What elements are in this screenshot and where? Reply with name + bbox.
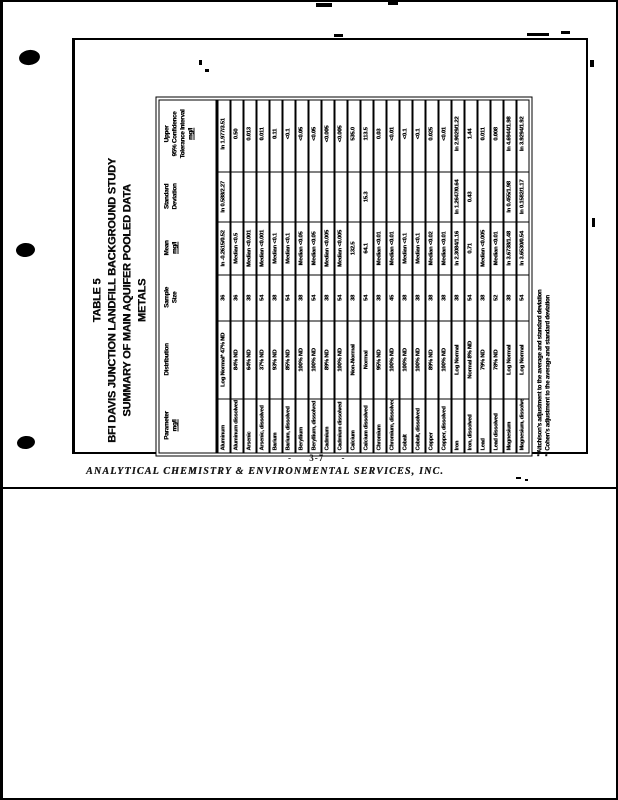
column-header-line: Distribution (164, 321, 172, 399)
table-cell (245, 172, 256, 222)
table-cell: 89% ND (427, 321, 438, 399)
hole-punch (15, 242, 35, 258)
table-cell (271, 172, 282, 222)
table-row: Arsenic64% ND38Median <0.0010.013 (245, 101, 258, 453)
column-header-line: Deviation (172, 172, 180, 222)
table-cell: 38 (271, 275, 282, 321)
table-cell: <0.05 (310, 97, 321, 172)
table-cell: Median <0.1 (284, 222, 295, 275)
scan-artifact (388, 2, 398, 5)
table-row: Beryllium, dissolved100% ND54Median <0.0… (310, 101, 323, 453)
table-cell: ln 2.9029/1.22 (453, 97, 464, 172)
table-row: Lead79% ND38Median <0.0050.011 (479, 101, 492, 453)
table-cell: Barium (271, 399, 282, 453)
table-cell: 0.025 (427, 97, 438, 172)
table-footnotes: * Aitchison's adjustment to the average … (537, 82, 553, 457)
table-cell: <0.1 (414, 97, 425, 172)
table-body: AluminumLog Normal* 47% ND36ln -0.2615/0… (219, 101, 529, 453)
table-cell: 100% ND (401, 321, 412, 399)
table-cell: <0.01 (440, 97, 451, 172)
table-row: Magnesium, dissolvedLog Normal54ln 3.653… (518, 101, 529, 453)
table-cell: Copper (427, 399, 438, 453)
table-cell (297, 172, 308, 222)
table-cell: 0.03 (375, 97, 386, 172)
column-header-line: 95% Confidence (172, 97, 180, 172)
table-cell (323, 172, 334, 222)
table-cell: 36 (232, 275, 243, 321)
table-cell: Median <0.02 (427, 222, 438, 275)
scan-artifact (334, 34, 343, 37)
table-row: Arsenic, dissolved37% ND54Median <0.0010… (258, 101, 271, 453)
table-cell: Median <0.1 (414, 222, 425, 275)
table-cell: ln -0.2615/0.52 (219, 222, 230, 275)
table-cell: Log Normal* 47% ND (219, 321, 230, 399)
table-cell: ln 1.977/3.51 (219, 97, 230, 172)
table-cell: Copper, dissolved (440, 399, 451, 453)
table-cell: Magnesium, dissolved (518, 399, 529, 453)
column-header-line: mg/l (172, 222, 180, 275)
table-cell: Median <0.5 (232, 222, 243, 275)
table-row: Barium93% ND38Median <0.10.11 (271, 101, 284, 453)
table-cell: Iron, dissolved (466, 399, 477, 453)
table-cell (336, 172, 347, 222)
column-header: StandardDeviation (160, 172, 216, 222)
table-row: Cadmium89% ND38Median <0.005<0.005 (323, 101, 336, 453)
column-header: Distribution (160, 321, 216, 399)
table-cell: 38 (479, 275, 490, 321)
table-cell (440, 172, 451, 222)
column-header: Meanmg/l (160, 222, 216, 275)
table-cell: Lead (479, 399, 490, 453)
title-line: TABLE 5 (91, 145, 106, 457)
page-number: - 3-7 - (288, 453, 346, 463)
footnote-line: ** Cohen's adjustment to the average and… (545, 82, 553, 457)
table-cell: 93% ND (271, 321, 282, 399)
table-cell: 535.0 (349, 97, 360, 172)
table-cell: Arsenic, dissolved (258, 399, 269, 453)
table-cell: 38 (427, 275, 438, 321)
column-header-line: Parameter (164, 399, 172, 453)
table-row: Barium, dissolved85% ND54Median <0.1<0.1 (284, 101, 297, 453)
table-cell: 38 (297, 275, 308, 321)
table-row: Chromium95% ND38Median <0.010.03 (375, 101, 388, 453)
table-cell: ln 1.2647/0.64 (453, 172, 464, 222)
table-cell: Median <0.1 (271, 222, 282, 275)
table-cell: Non-Normal (349, 321, 360, 399)
table-cell: Normal (362, 321, 373, 399)
table-row: Aluminum dissolved84% ND36Median <0.50.5… (232, 101, 245, 453)
table-row: IronLog Normal38ln 2.3084/1.16ln 1.2647/… (453, 101, 466, 453)
table-cell: ln 0.455/1.98 (505, 172, 516, 222)
table-row: Calcium dissolvedNormal5464.115.3113.5 (362, 101, 375, 453)
hole-punch (18, 49, 41, 67)
table-cell: 0.011 (479, 97, 490, 172)
table-cell: Median <0.05 (297, 222, 308, 275)
table-cell: 52 (492, 275, 503, 321)
column-header-line: mg/l (172, 399, 180, 453)
table-cell: 54 (336, 275, 347, 321)
table-cell: ln 3.6530/0.54 (518, 222, 529, 275)
scan-artifact (516, 477, 521, 479)
table-cell (401, 172, 412, 222)
table-cell: 38 (440, 275, 451, 321)
column-header-line: Upper (164, 97, 172, 172)
table-cell: Cobalt, dissolved (414, 399, 425, 453)
column-header-line: Sample (164, 275, 172, 321)
table-cell: 64% ND (245, 321, 256, 399)
table-cell: 0.11 (271, 97, 282, 172)
table-cell: Arsenic (245, 399, 256, 453)
table-cell: <0.005 (323, 97, 334, 172)
scan-artifact (592, 218, 595, 227)
footnote-line: * Aitchison's adjustment to the average … (537, 82, 545, 457)
table-cell: ln 3.9294/1.92 (518, 97, 529, 172)
table-cell: 38 (505, 275, 516, 321)
table-cell: 0.50 (232, 97, 243, 172)
table-cell: Median <0.005 (479, 222, 490, 275)
table-cell: <0.01 (388, 97, 399, 172)
table-cell: 113.5 (362, 97, 373, 172)
table-cell: 45 (388, 275, 399, 321)
table-cell: 78% ND (492, 321, 503, 399)
table-cell (479, 172, 490, 222)
column-header-line: Mean (164, 222, 172, 275)
table-cell: Median <0.01 (388, 222, 399, 275)
scan-artifact (525, 479, 528, 481)
table-cell: 0.43 (466, 172, 477, 222)
table-cell: Median <0.05 (310, 222, 321, 275)
table-cell: Beryllium (297, 399, 308, 453)
table-row: Copper, dissolved100% ND38Median <0.01<0… (440, 101, 453, 453)
table-cell: Median <0.001 (245, 222, 256, 275)
table-cell (388, 172, 399, 222)
table-cell: 54 (518, 275, 529, 321)
table-cell: ln 4.6944/1.98 (505, 97, 516, 172)
table-cell: 54 (362, 275, 373, 321)
table-cell: Chromium, dissolved (388, 399, 399, 453)
table-cell: 1.44 (466, 97, 477, 172)
table-cell: 36 (219, 275, 230, 321)
table-row: CalciumNon-Normal38132.5535.0 (349, 101, 362, 453)
table-row: Chromium, dissolved100% ND45Median <0.01… (388, 101, 401, 453)
scanned-document-page: { "page": { "title_lines": [ "TABLE 5", … (0, 0, 618, 800)
data-table: Parametermg/lDistributionSampleSizeMeanm… (156, 97, 533, 457)
table-cell: Calcium (349, 399, 360, 453)
table-cell: 0.008 (492, 97, 503, 172)
table-cell: Log Normal (518, 321, 529, 399)
scan-artifact (590, 60, 594, 67)
table-row: Cobalt, dissolved100% ND38Median <0.1<0.… (414, 101, 427, 453)
table-cell: Median <0.005 (336, 222, 347, 275)
table-row: MagnesiumLog Normal38ln 3.6738/1.48ln 0.… (505, 101, 518, 453)
table-cell: <0.1 (284, 97, 295, 172)
table-cell: Aluminum (219, 399, 230, 453)
table-cell: 84% ND (232, 321, 243, 399)
table-cell: 100% ND (336, 321, 347, 399)
table-cell: 64.1 (362, 222, 373, 275)
table-cell: ln 3.6738/1.48 (505, 222, 516, 275)
table-cell: 85% ND (284, 321, 295, 399)
table-cell: <0.005 (336, 97, 347, 172)
column-header-line: mg/l (188, 97, 196, 172)
table-cell (427, 172, 438, 222)
table-row: Iron, dissolvedNormal 8% ND540.710.431.4… (466, 101, 479, 453)
table-cell: Cadmium (323, 399, 334, 453)
table-cell: Barium, dissolved (284, 399, 295, 453)
scan-artifact (527, 33, 549, 36)
title-line: SUMMARY OF MAIN AQUIFER POOLED DATA (121, 145, 136, 457)
table-cell: 0.011 (258, 97, 269, 172)
table-row: Cobalt100% ND38Median <0.1<0.1 (401, 101, 414, 453)
table-cell: Median <0.005 (323, 222, 334, 275)
column-header: Upper95% ConfidenceTolerance Intervalmg/… (160, 97, 216, 172)
table-cell: 38 (323, 275, 334, 321)
column-header-line: Standard (164, 172, 172, 222)
table-cell (414, 172, 425, 222)
column-header: Parametermg/l (160, 399, 216, 453)
column-header-line: Tolerance Interval (180, 97, 188, 172)
table-cell: <0.05 (297, 97, 308, 172)
table-cell: 54 (310, 275, 321, 321)
table-cell: 38 (349, 275, 360, 321)
title-line: BFI DAVIS JUNCTION LANDFILL BACKGROUND S… (106, 145, 121, 457)
table-cell: 0.013 (245, 97, 256, 172)
table-cell: 54 (466, 275, 477, 321)
column-header-line: Size (172, 275, 180, 321)
table-cell: 37% ND (258, 321, 269, 399)
table-cell: 89% ND (323, 321, 334, 399)
table-cell (284, 172, 295, 222)
table-cell (349, 172, 360, 222)
table-cell: 100% ND (310, 321, 321, 399)
table-cell: 38 (375, 275, 386, 321)
table-cell: ln 0.1582/1.17 (518, 172, 529, 222)
table-cell: Median <0.001 (258, 222, 269, 275)
table-row: AluminumLog Normal* 47% ND36ln -0.2615/0… (219, 101, 232, 453)
table-cell: Median <0.1 (401, 222, 412, 275)
table-cell: Beryllium, dissolved (310, 399, 321, 453)
table-row: Beryllium100% ND38Median <0.05<0.05 (297, 101, 310, 453)
table-cell (258, 172, 269, 222)
table-cell: 38 (401, 275, 412, 321)
table-cell: <0.1 (401, 97, 412, 172)
table-cell: 79% ND (479, 321, 490, 399)
title-line: METALS (136, 145, 151, 457)
table-cell: Aluminum dissolved (232, 399, 243, 453)
table-cell: Log Normal (505, 321, 516, 399)
company-footer: ANALYTICAL CHEMISTRY & ENVIRONMENTAL SER… (86, 466, 506, 477)
table-row: Cadmium dissolved100% ND54Median <0.005<… (336, 101, 349, 453)
table-cell: 100% ND (388, 321, 399, 399)
table-row: Lead dissolved78% ND52Median <0.010.008 (492, 101, 505, 453)
document-title: TABLE 5BFI DAVIS JUNCTION LANDFILL BACKG… (91, 145, 151, 457)
table-cell: 38 (414, 275, 425, 321)
table-cell: 95% ND (375, 321, 386, 399)
table-cell: Median <0.01 (375, 222, 386, 275)
hole-punch (16, 435, 35, 450)
bottom-scan-rule (2, 487, 616, 489)
scan-artifact (316, 3, 332, 7)
table-cell (492, 172, 503, 222)
table-cell: Log Normal (453, 321, 464, 399)
table-cell: 54 (258, 275, 269, 321)
table-cell: 54 (284, 275, 295, 321)
table-cell: Chromium (375, 399, 386, 453)
table-cell: 100% ND (440, 321, 451, 399)
table-cell (232, 172, 243, 222)
table-cell (375, 172, 386, 222)
table-cell: Cadmium dissolved (336, 399, 347, 453)
table-cell: 132.5 (349, 222, 360, 275)
table-cell: Median <0.01 (492, 222, 503, 275)
table-cell: Iron (453, 399, 464, 453)
table-cell: 38 (453, 275, 464, 321)
table-cell: ln 0.588/2.27 (219, 172, 230, 222)
table-cell (310, 172, 321, 222)
scan-artifact (561, 31, 570, 34)
table-cell: 15.3 (362, 172, 373, 222)
table-cell: 100% ND (414, 321, 425, 399)
column-header: SampleSize (160, 275, 216, 321)
table-header-row: Parametermg/lDistributionSampleSizeMeanm… (160, 101, 219, 453)
table-row: Copper89% ND38Median <0.020.025 (427, 101, 440, 453)
table-cell: 100% ND (297, 321, 308, 399)
table-cell: Calcium dissolved (362, 399, 373, 453)
table-cell: Lead dissolved (492, 399, 503, 453)
table-cell: 0.71 (466, 222, 477, 275)
table-cell: Cobalt (401, 399, 412, 453)
table-cell: ln 2.3084/1.16 (453, 222, 464, 275)
rotated-table-block: TABLE 5BFI DAVIS JUNCTION LANDFILL BACKG… (84, 82, 562, 457)
table-cell: Median <0.01 (440, 222, 451, 275)
table-cell: Magnesium (505, 399, 516, 453)
table-cell: Normal 8% ND (466, 321, 477, 399)
table-cell: 38 (245, 275, 256, 321)
